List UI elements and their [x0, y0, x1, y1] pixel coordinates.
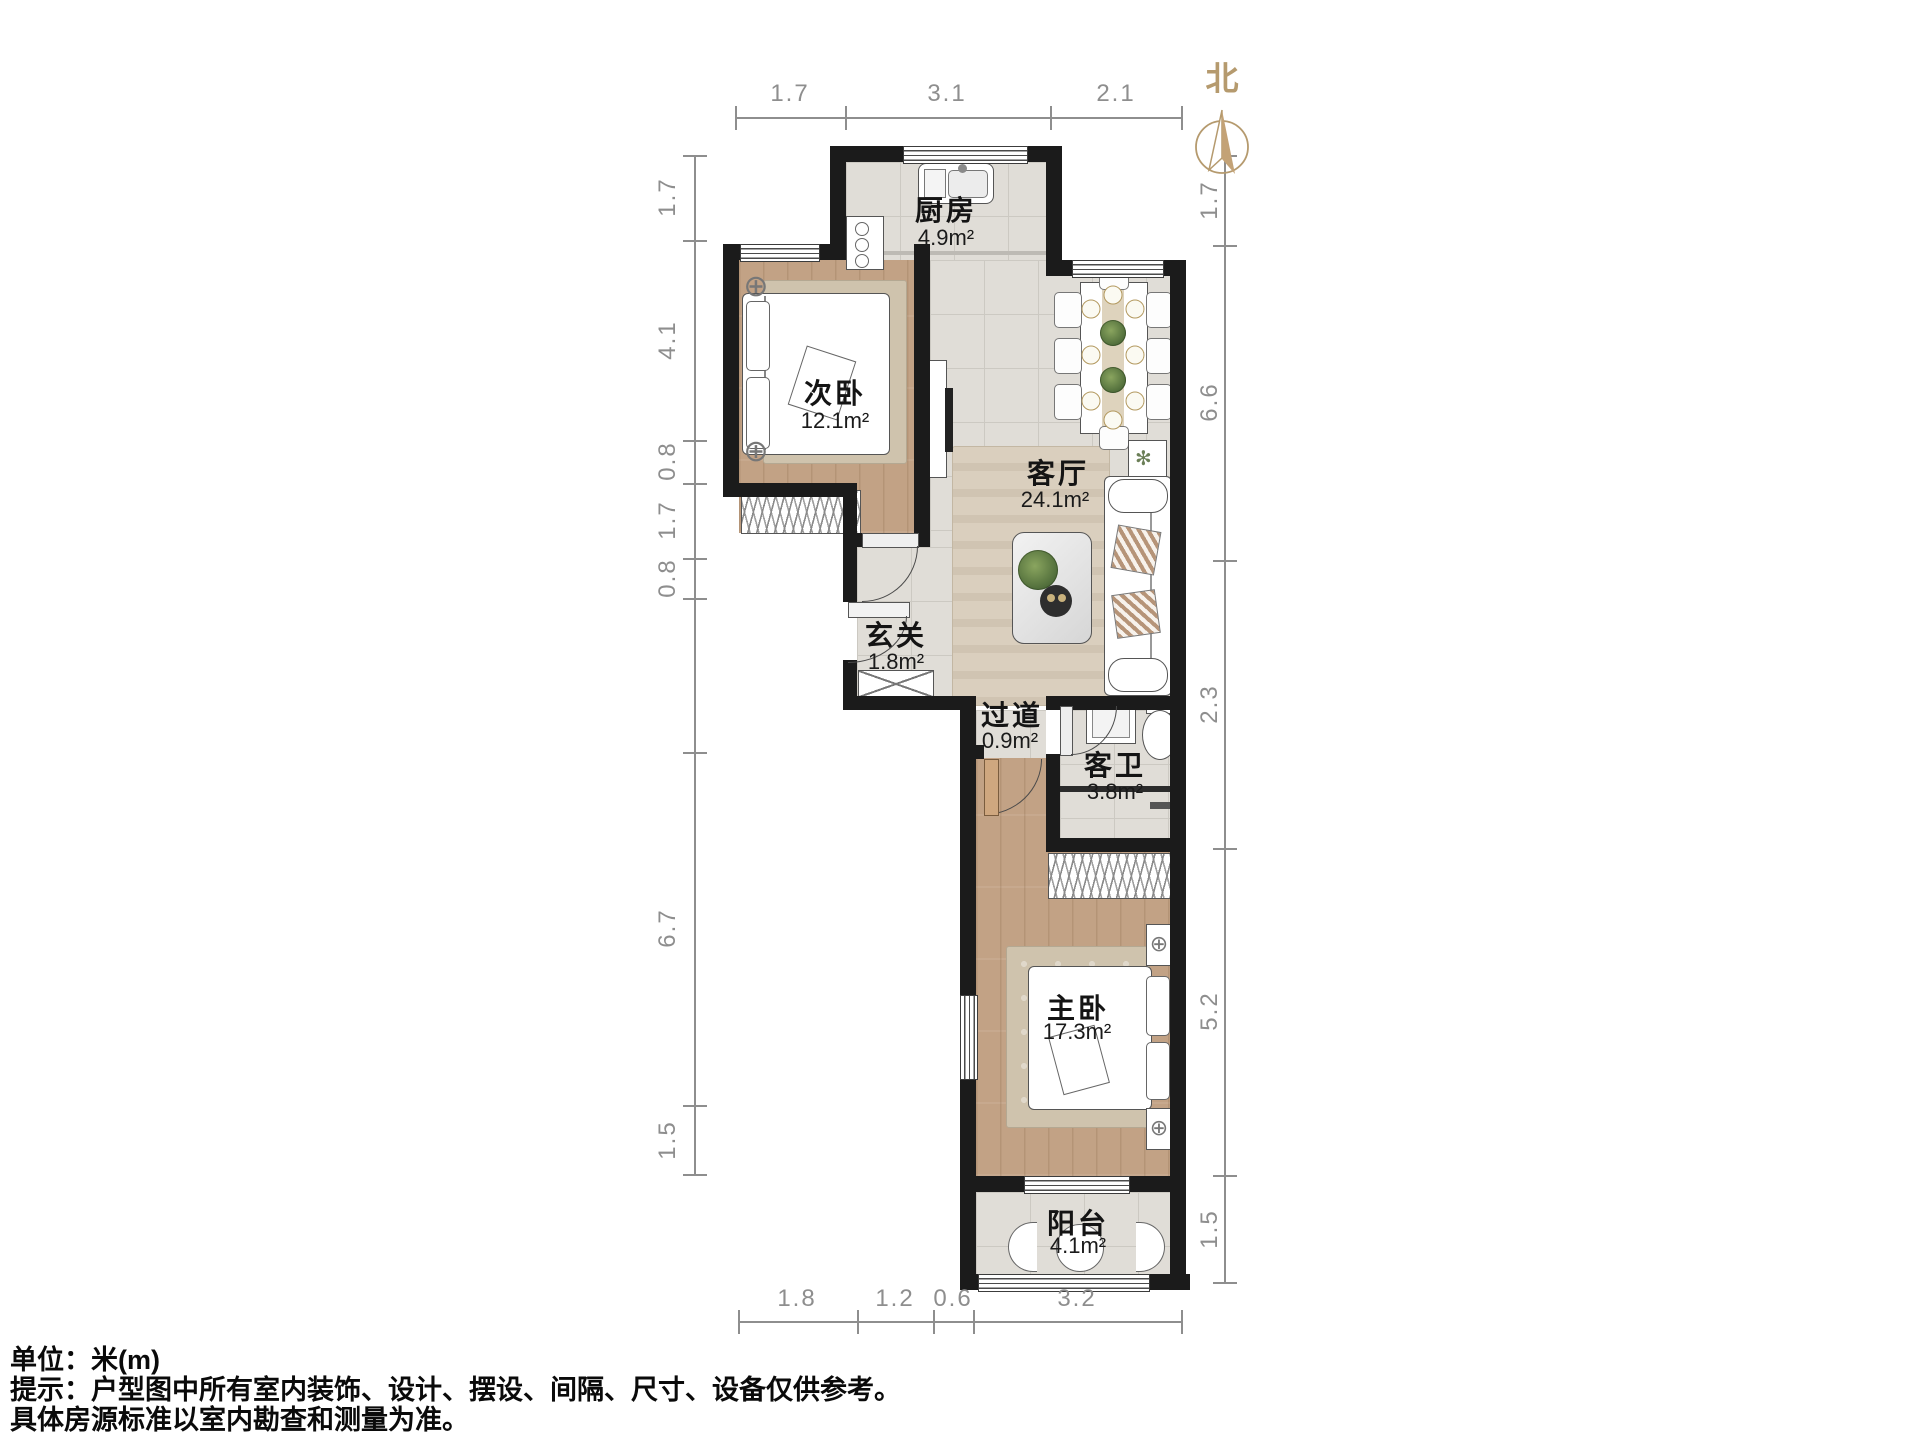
dimension-value: 2.1	[1096, 80, 1135, 108]
wall	[1046, 838, 1186, 852]
dimension-tick	[1050, 106, 1052, 130]
dimension-line-right	[1224, 155, 1226, 1283]
dimension-line-left	[694, 155, 696, 1175]
master-bed-pillow	[1146, 976, 1170, 1036]
table-plant	[1100, 320, 1126, 346]
dimension-tick	[845, 106, 847, 130]
place-setting	[1082, 346, 1101, 365]
master-bedroom-window	[960, 995, 978, 1080]
dimension-tick	[1213, 245, 1237, 247]
living-room-window	[1072, 260, 1164, 278]
footer-disclaimer-line2: 具体房源标准以室内勘查和测量为准。	[10, 1398, 469, 1437]
dimension-tick	[683, 598, 707, 600]
room-area-bathroom: 3.8m²	[1087, 779, 1143, 805]
master-door-leaf	[984, 759, 999, 816]
dimension-tick	[857, 1310, 859, 1334]
wall	[723, 483, 857, 497]
dining-table-runner	[1102, 283, 1124, 431]
sofa-armrest	[1108, 658, 1168, 692]
side-table-plant-icon: ✻	[1135, 446, 1152, 471]
dimension-value: 3.2	[1057, 1285, 1096, 1313]
place-setting	[1126, 346, 1145, 365]
room-area-entrance: 1.8m²	[868, 649, 924, 675]
ceiling-fixture-icon: ⊕	[743, 272, 768, 302]
wall	[1170, 260, 1186, 1290]
wall	[960, 696, 976, 1290]
kitchen-window	[903, 146, 1028, 164]
dimension-value: 2.3	[1196, 684, 1224, 723]
dimension-tick	[1213, 560, 1237, 562]
wall	[843, 533, 862, 547]
dimension-value: 0.6	[933, 1285, 972, 1313]
room-label-second-bedroom: 次卧	[804, 372, 866, 412]
dimension-value: 5.2	[1196, 991, 1224, 1030]
sofa-cushion	[1111, 525, 1162, 576]
dimension-tick	[683, 155, 707, 157]
dimension-value: 1.7	[654, 177, 682, 216]
dimension-value: 6.6	[1196, 382, 1224, 421]
room-label-living-room: 客厅	[1027, 452, 1089, 492]
wall	[723, 244, 739, 497]
dimension-tick	[1181, 106, 1183, 130]
floorplan-page: ⊕ ⊕ ✻	[0, 0, 1920, 1440]
kitchen-faucet	[958, 164, 967, 173]
dimension-tick	[933, 1310, 935, 1334]
stove-burner	[855, 238, 869, 252]
dimension-tick	[1213, 848, 1237, 850]
compass-north-label: 北	[1206, 52, 1239, 100]
wall	[830, 146, 846, 260]
room-area-master-bedroom: 17.3m²	[1043, 1019, 1111, 1045]
dimension-tick	[1181, 1310, 1183, 1334]
dimension-tick	[683, 240, 707, 242]
dimension-tick	[683, 483, 707, 485]
dimension-line-bottom	[738, 1321, 1182, 1323]
dining-chair	[1099, 426, 1129, 450]
sofa-armrest	[1108, 479, 1168, 513]
dimension-value: 6.7	[654, 908, 682, 947]
dimension-tick	[683, 1174, 707, 1176]
dimension-value: 1.7	[654, 500, 682, 539]
dimension-value: 1.5	[654, 1120, 682, 1159]
room-area-second-bedroom: 12.1m²	[801, 408, 869, 434]
room-area-balcony: 4.1m²	[1050, 1233, 1106, 1259]
wall	[960, 745, 984, 759]
dimension-tick	[683, 440, 707, 442]
dining-chair	[1146, 384, 1172, 420]
dining-chair	[1054, 384, 1082, 420]
place-setting	[1104, 411, 1123, 430]
place-setting	[1126, 300, 1145, 319]
dimension-value: 0.8	[654, 441, 682, 480]
coffee-table-tray	[1040, 585, 1072, 617]
wall	[843, 696, 976, 710]
place-setting	[1082, 392, 1101, 411]
sofa-cushion	[1111, 589, 1161, 639]
coffee-table-plant	[1018, 550, 1058, 590]
balcony-door-window	[1024, 1176, 1130, 1194]
room-label-kitchen: 厨房	[915, 189, 977, 229]
tv-screen	[945, 388, 953, 452]
ceiling-fixture-icon: ⊕	[1150, 1117, 1168, 1139]
dimension-tick	[683, 558, 707, 560]
dining-chair	[1146, 292, 1172, 328]
dimension-value: 1.5	[1196, 1209, 1224, 1248]
ceiling-fixture-icon: ⊕	[743, 437, 768, 467]
dining-chair	[1054, 292, 1082, 328]
dimension-value: 4.1	[654, 320, 682, 359]
wall	[914, 244, 930, 547]
master-bed-pillow	[1146, 1042, 1170, 1100]
ceiling-fixture-icon: ⊕	[1150, 933, 1168, 955]
dining-chair	[1054, 338, 1082, 374]
dimension-value: 1.8	[777, 1285, 816, 1313]
dimension-tick	[1213, 1282, 1237, 1284]
table-plant	[1100, 367, 1126, 393]
dimension-tick	[683, 1105, 707, 1107]
dimension-value: 0.8	[654, 558, 682, 597]
wall	[1046, 146, 1062, 276]
dimension-tick	[683, 752, 707, 754]
dimension-value: 1.2	[875, 1285, 914, 1313]
dimension-tick	[1213, 1175, 1237, 1177]
second-bedroom-window	[740, 244, 820, 262]
stove-burner	[855, 222, 869, 236]
dining-chair	[1146, 338, 1172, 374]
dimension-value: 1.7	[770, 80, 809, 108]
master-wardrobe	[1048, 853, 1172, 899]
bed-pillow	[746, 301, 770, 371]
room-area-kitchen: 4.9m²	[918, 225, 974, 251]
room-label-bathroom: 客卫	[1084, 744, 1146, 784]
room-area-hallway: 0.9m²	[982, 728, 1038, 754]
dimension-value: 3.1	[927, 80, 966, 108]
tray-cup	[1047, 594, 1055, 602]
dimension-tick	[738, 1310, 740, 1334]
place-setting	[1104, 286, 1123, 305]
tray-cup	[1058, 594, 1066, 602]
dimension-tick	[973, 1310, 975, 1334]
dimension-line-top	[735, 117, 1182, 119]
compass-icon	[1192, 104, 1252, 190]
room-area-living-room: 24.1m²	[1021, 487, 1089, 513]
place-setting	[1082, 300, 1101, 319]
room-label-entrance: 玄关	[865, 614, 927, 654]
stove-burner	[855, 254, 869, 268]
place-setting	[1126, 392, 1145, 411]
dimension-tick	[735, 106, 737, 130]
